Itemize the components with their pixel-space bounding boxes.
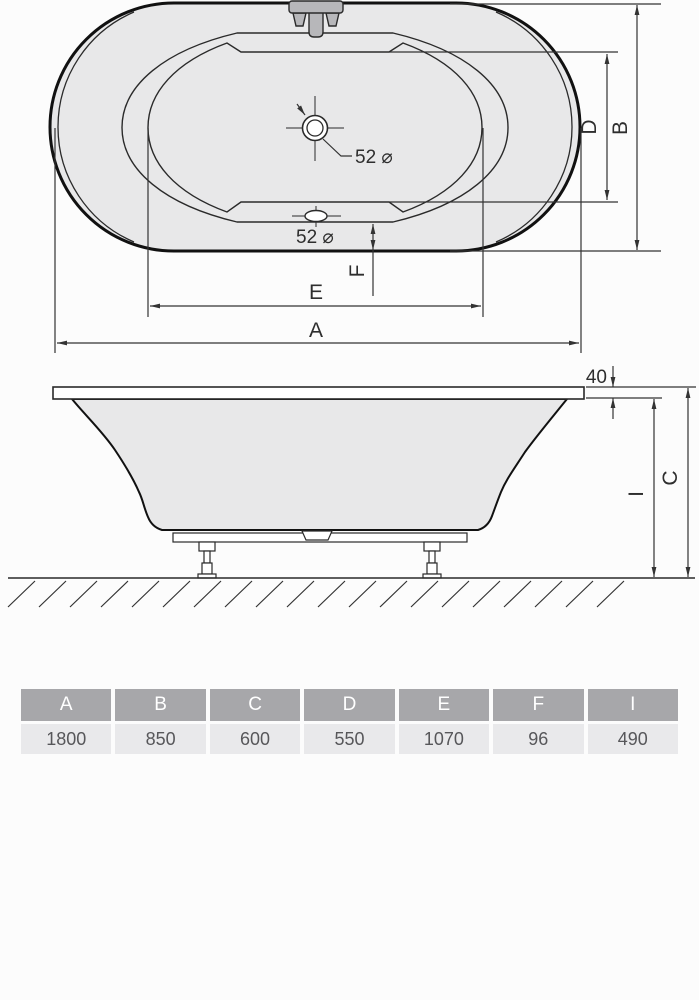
table-header-a: A bbox=[21, 689, 111, 721]
tub-top-view: 52 ⌀ 52 ⌀ B D F bbox=[50, 1, 661, 353]
right-leg-stem bbox=[429, 551, 435, 563]
right-leg-bracket bbox=[424, 542, 440, 551]
technical-drawing-canvas: 52 ⌀ 52 ⌀ B D F bbox=[0, 0, 699, 685]
faucet-right-knob bbox=[326, 13, 339, 26]
table-header-f: F bbox=[493, 689, 583, 721]
table-header-row: A B C D E F I bbox=[21, 689, 678, 721]
right-leg bbox=[423, 542, 441, 578]
table-value-c: 600 bbox=[210, 724, 300, 754]
dim-b-label: B bbox=[609, 121, 632, 135]
table-value-i: 490 bbox=[588, 724, 678, 754]
dim-a-label: A bbox=[309, 319, 323, 342]
table-header-i: I bbox=[588, 689, 678, 721]
left-leg-stem bbox=[204, 551, 210, 563]
dim-40-label: 40 bbox=[586, 367, 607, 388]
drain-diameter-label: 52 ⌀ bbox=[355, 147, 393, 168]
table-header-c: C bbox=[210, 689, 300, 721]
table-value-a: 1800 bbox=[21, 724, 111, 754]
dim-i-label: I bbox=[625, 491, 648, 497]
left-leg-bracket bbox=[199, 542, 215, 551]
dimension-table: A B C D E F I 1800 850 600 550 1070 96 4… bbox=[21, 689, 678, 754]
table-value-b: 850 bbox=[115, 724, 205, 754]
table-value-e: 1070 bbox=[399, 724, 489, 754]
table-header-e: E bbox=[399, 689, 489, 721]
table-value-f: 96 bbox=[493, 724, 583, 754]
table-header-b: B bbox=[115, 689, 205, 721]
overflow-diameter-label: 52 ⌀ bbox=[296, 227, 334, 248]
overflow-ellipse bbox=[305, 211, 327, 222]
left-leg bbox=[198, 542, 216, 578]
faucet-bar bbox=[289, 1, 343, 13]
right-leg-lower-stem bbox=[427, 563, 437, 574]
table-value-row: 1800 850 600 550 1070 96 490 bbox=[21, 724, 678, 754]
table-header-d: D bbox=[304, 689, 394, 721]
drain-recess bbox=[302, 531, 332, 540]
bathtub-technical-drawing-page: { "colors": { "bg": "#fcfcfc", "tub_fill… bbox=[0, 0, 699, 1000]
dim-c-label: C bbox=[659, 470, 682, 485]
tub-side-body bbox=[72, 399, 567, 530]
drain-inner-circle bbox=[307, 120, 323, 136]
ground-hatching bbox=[8, 581, 624, 607]
tub-rim-ledge bbox=[53, 387, 584, 399]
faucet-stem bbox=[309, 12, 323, 37]
faucet-left-knob bbox=[293, 13, 306, 26]
tub-side-view: 40 C I bbox=[8, 366, 696, 607]
dim-f-label: F bbox=[346, 265, 369, 278]
table-value-d: 550 bbox=[304, 724, 394, 754]
dim-e-label: E bbox=[309, 281, 323, 304]
left-leg-lower-stem bbox=[202, 563, 212, 574]
